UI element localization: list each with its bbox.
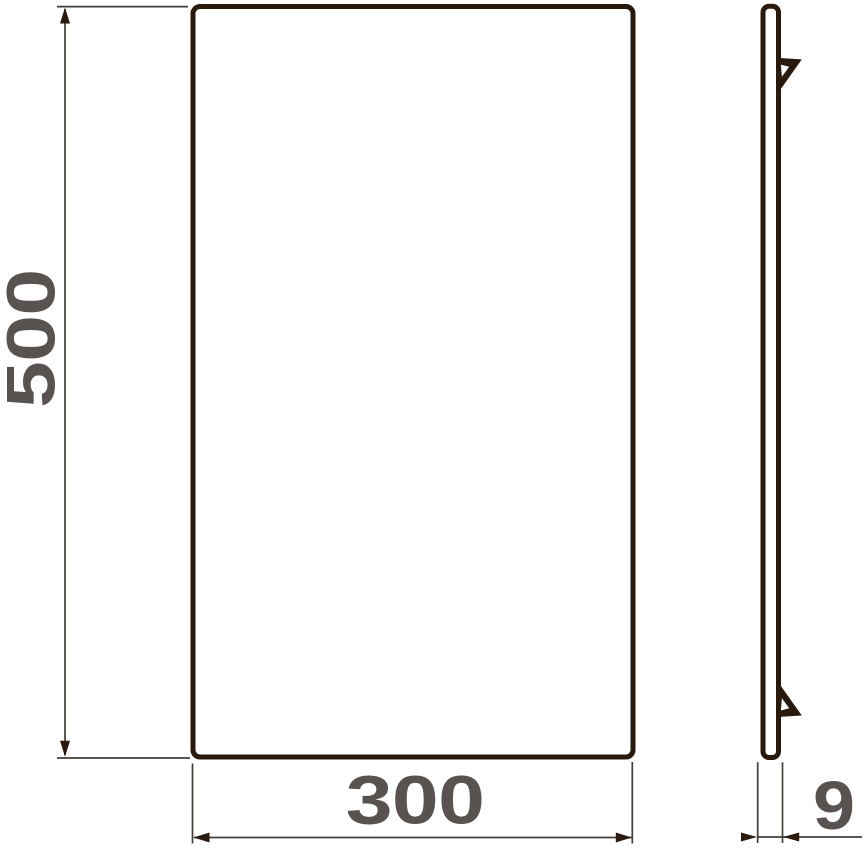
- svg-text:300: 300: [346, 762, 485, 839]
- svg-text:500: 500: [0, 269, 70, 408]
- svg-text:9: 9: [813, 767, 855, 844]
